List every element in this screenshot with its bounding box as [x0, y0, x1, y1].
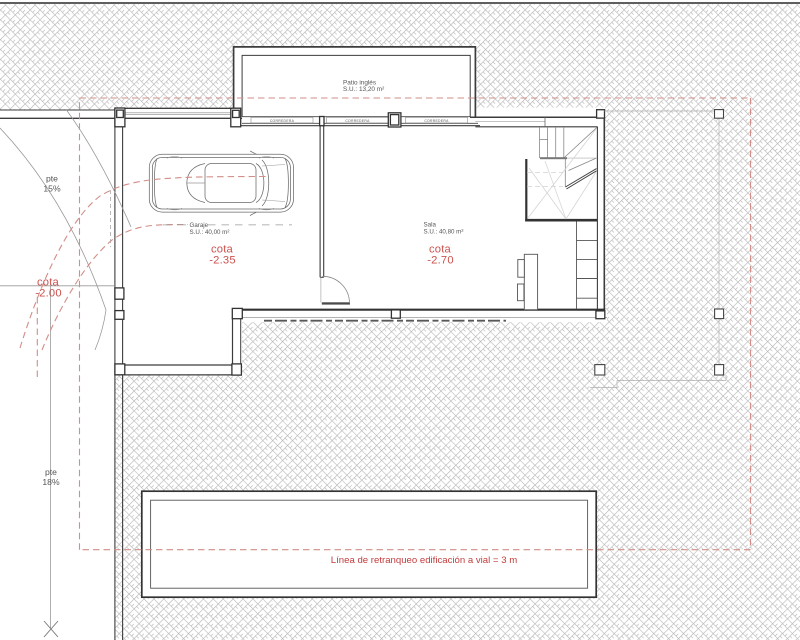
svg-text:CORREDERA: CORREDERA [345, 119, 370, 123]
svg-text:18%: 18% [42, 477, 60, 487]
svg-text:S.U.: 13,20 m²: S.U.: 13,20 m² [343, 86, 384, 93]
svg-text:-2.00: -2.00 [35, 287, 62, 299]
svg-text:15%: 15% [43, 184, 61, 194]
svg-text:CORREDERA: CORREDERA [424, 119, 449, 123]
svg-text:S.U.: 40,00 m²: S.U.: 40,00 m² [190, 229, 230, 236]
svg-text:CORREDERA: CORREDERA [270, 119, 295, 123]
svg-text:Línea de retranqueo edificació: Línea de retranqueo edificación a vial =… [331, 555, 517, 566]
svg-text:S.U.: 40,80 m²: S.U.: 40,80 m² [424, 228, 464, 235]
svg-text:pte: pte [46, 174, 58, 184]
svg-text:pte: pte [45, 467, 57, 477]
svg-text:-2.70: -2.70 [427, 255, 454, 267]
svg-text:-2.35: -2.35 [209, 255, 236, 267]
